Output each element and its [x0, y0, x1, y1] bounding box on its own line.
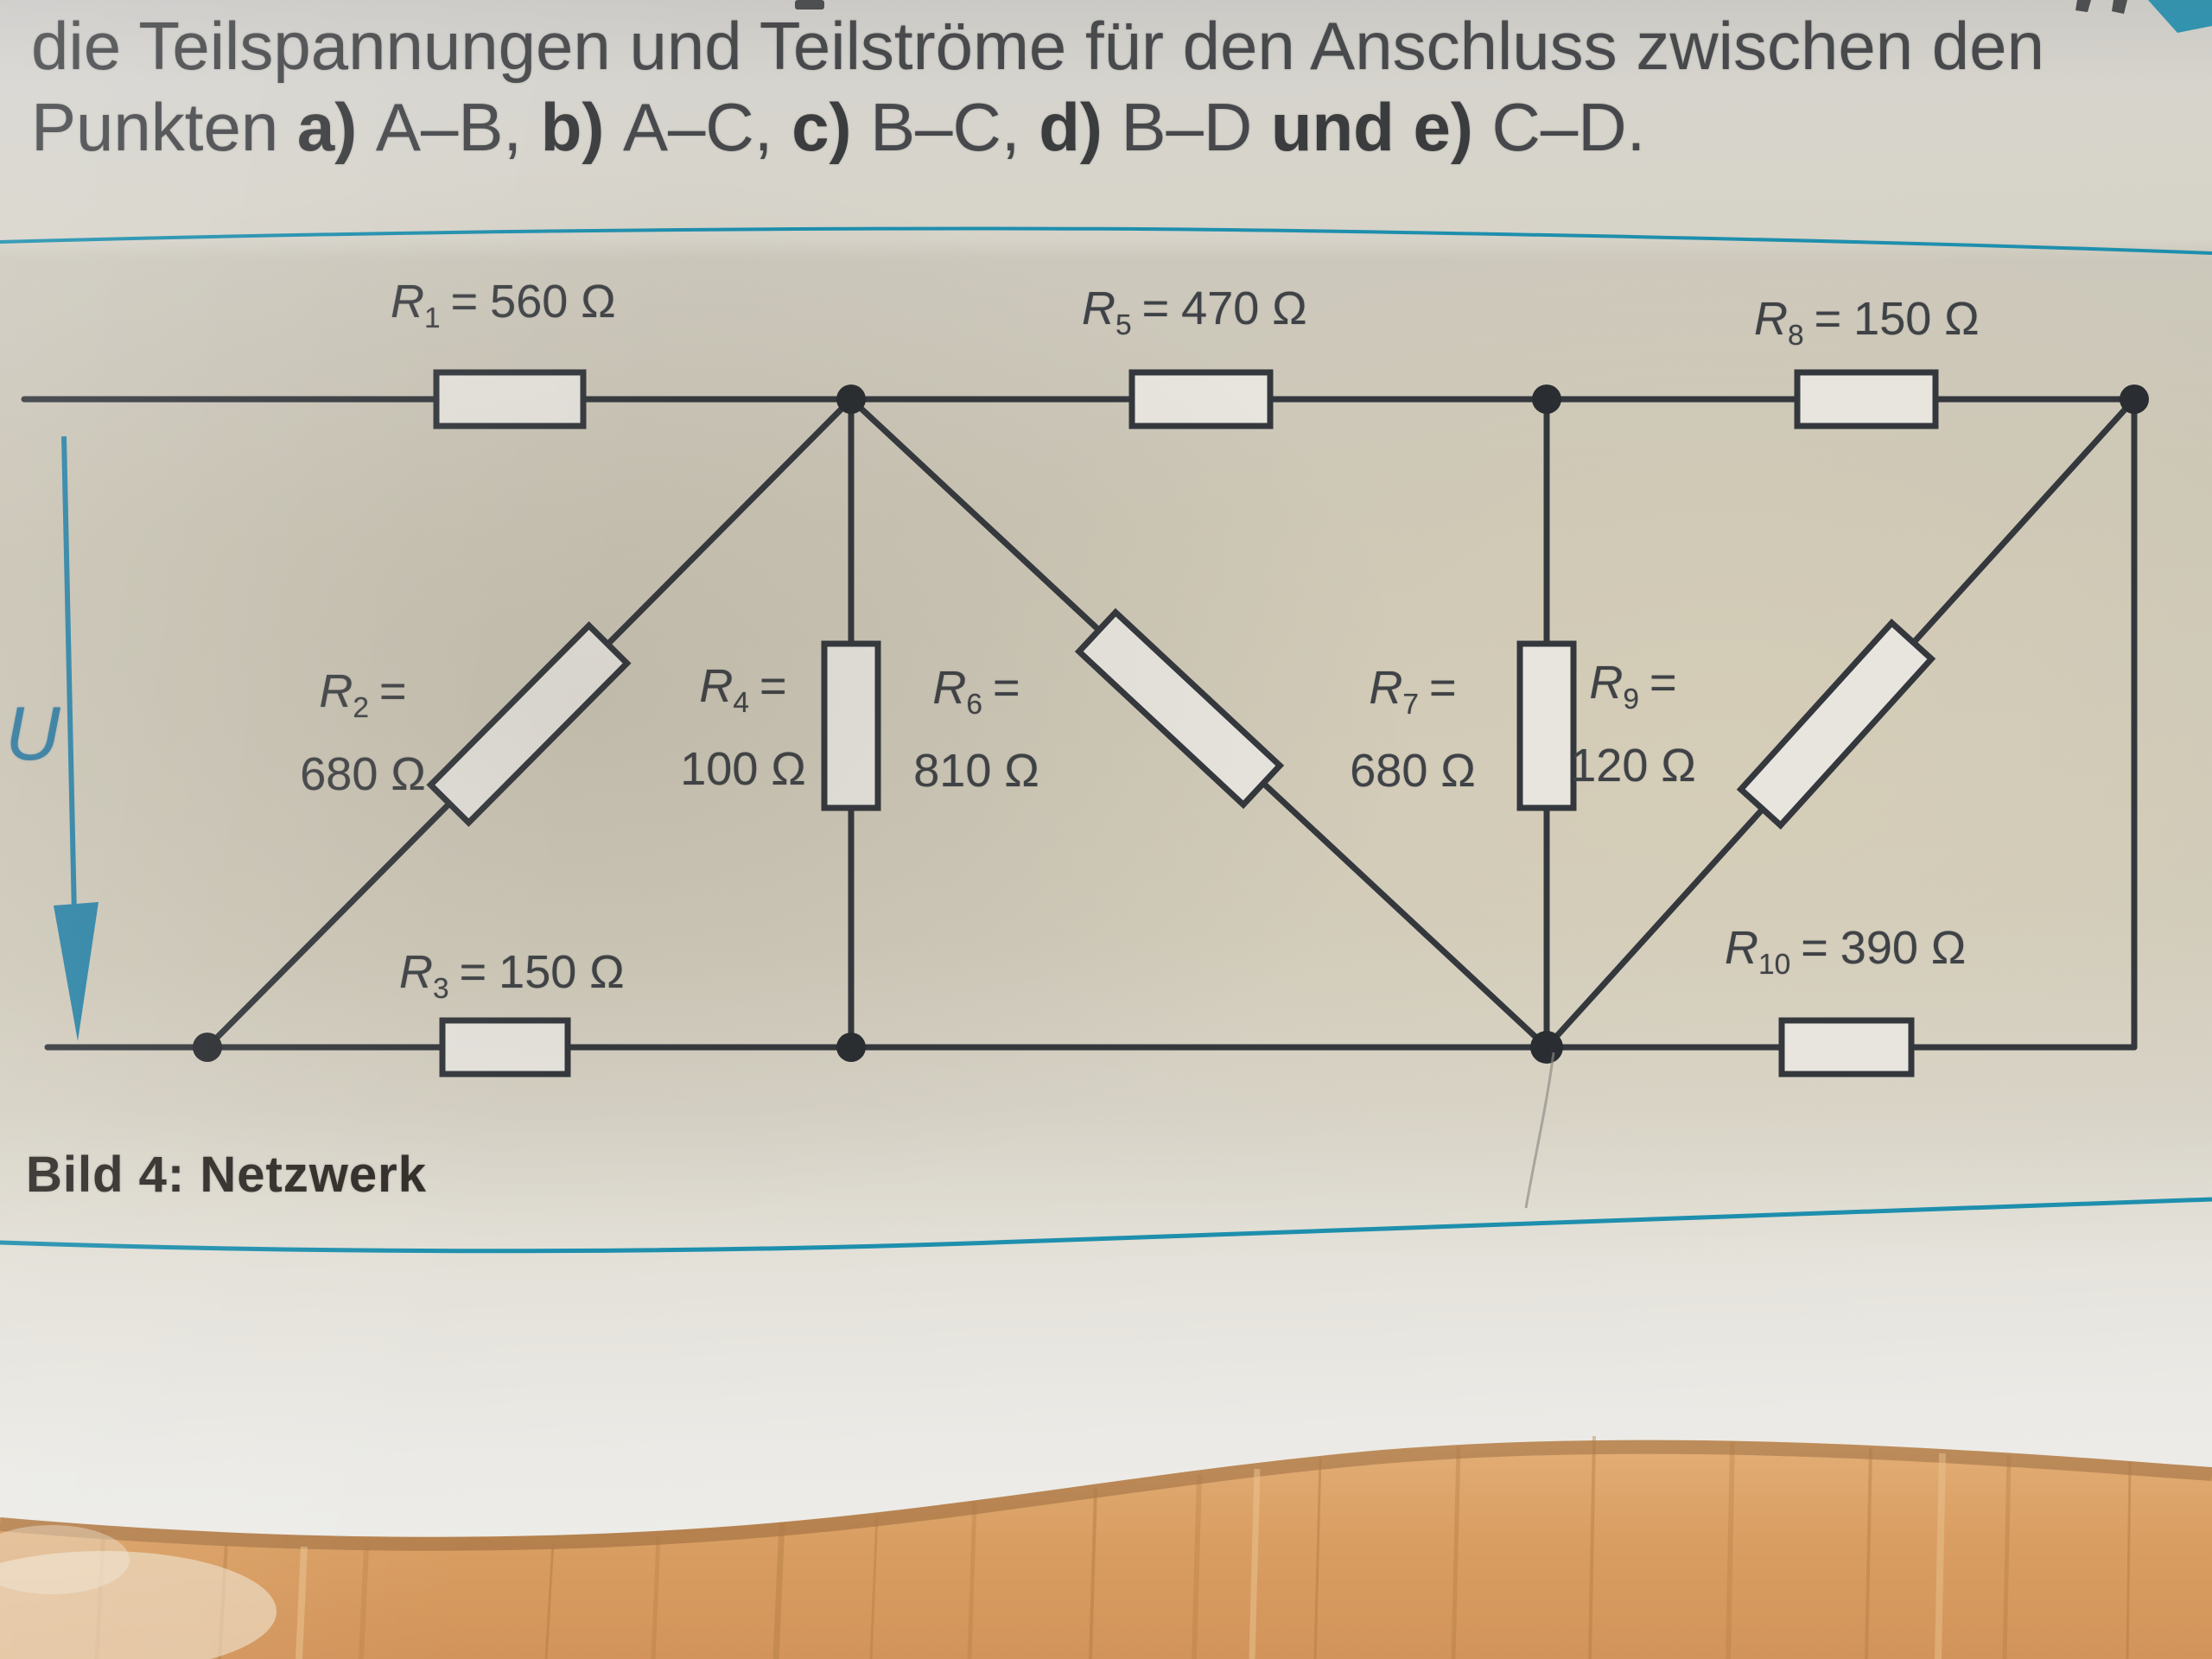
resistor-R4-box: [824, 644, 878, 808]
node-top-middle-junction: [1532, 385, 1561, 414]
resistor-R10-box: [1782, 1020, 1911, 1074]
voltage-label: U: [5, 690, 60, 778]
resistor-R3-box: [442, 1020, 568, 1074]
cut-graphic-fragment: [2148, 0, 2212, 33]
cut-text-fragment: [2075, 0, 2091, 12]
label-r4: R4= 100 Ω: [665, 653, 821, 802]
node-top-right-junction: [2120, 385, 2149, 414]
node-top-left-junction: [836, 385, 866, 414]
label-r8: R8=150 Ω: [1754, 292, 1980, 353]
voltage-arrow-head: [54, 902, 99, 1041]
textbook-photo: die Teilspannungen und Teilströme für de…: [0, 0, 2212, 1659]
label-r2: R2= 680 Ω: [285, 658, 441, 807]
cut-text-fragment: [2112, 0, 2127, 14]
label-r9: R9= 120 Ω: [1555, 650, 1711, 798]
node-bottom-middle-junction: [836, 1033, 866, 1062]
label-r7: R7= 680 Ω: [1335, 655, 1491, 804]
resistor-R9-box: [1741, 623, 1932, 825]
task-text-line2: Punkten a) A–B, b) A–C, c) B–C, d) B–D u…: [31, 88, 1645, 167]
resistor-R2-box: [430, 626, 626, 823]
task-text-line1: die Teilspannungen und Teilströme für de…: [31, 7, 2044, 86]
figure-bottom-rule: [0, 1199, 2212, 1251]
node-bottom-left-junction: [193, 1033, 222, 1062]
resistor-R1-box: [436, 372, 583, 426]
label-r3: R3=150 Ω: [399, 945, 625, 1006]
node-bottom-right-junction: [1530, 1031, 1563, 1064]
page-and-circuit-canvas: [0, 0, 2212, 1659]
label-r6: R6= 810 Ω: [899, 655, 1054, 804]
label-r1: R1=560 Ω: [391, 275, 616, 335]
label-r5: R5=470 Ω: [1082, 282, 1307, 342]
pencil-scratch: [1526, 1052, 1554, 1208]
resistor-R6-box: [1079, 613, 1280, 805]
wood-table: [0, 1440, 2212, 1659]
figure-caption: Bild 4: Netzwerk: [26, 1146, 427, 1204]
label-r10: R10=390 Ω: [1725, 921, 1966, 982]
voltage-arrow-shaft: [64, 436, 74, 916]
resistor-R5-box: [1132, 372, 1270, 426]
figure-top-rule: [0, 229, 2212, 253]
resistor-R8-box: [1797, 372, 1935, 426]
